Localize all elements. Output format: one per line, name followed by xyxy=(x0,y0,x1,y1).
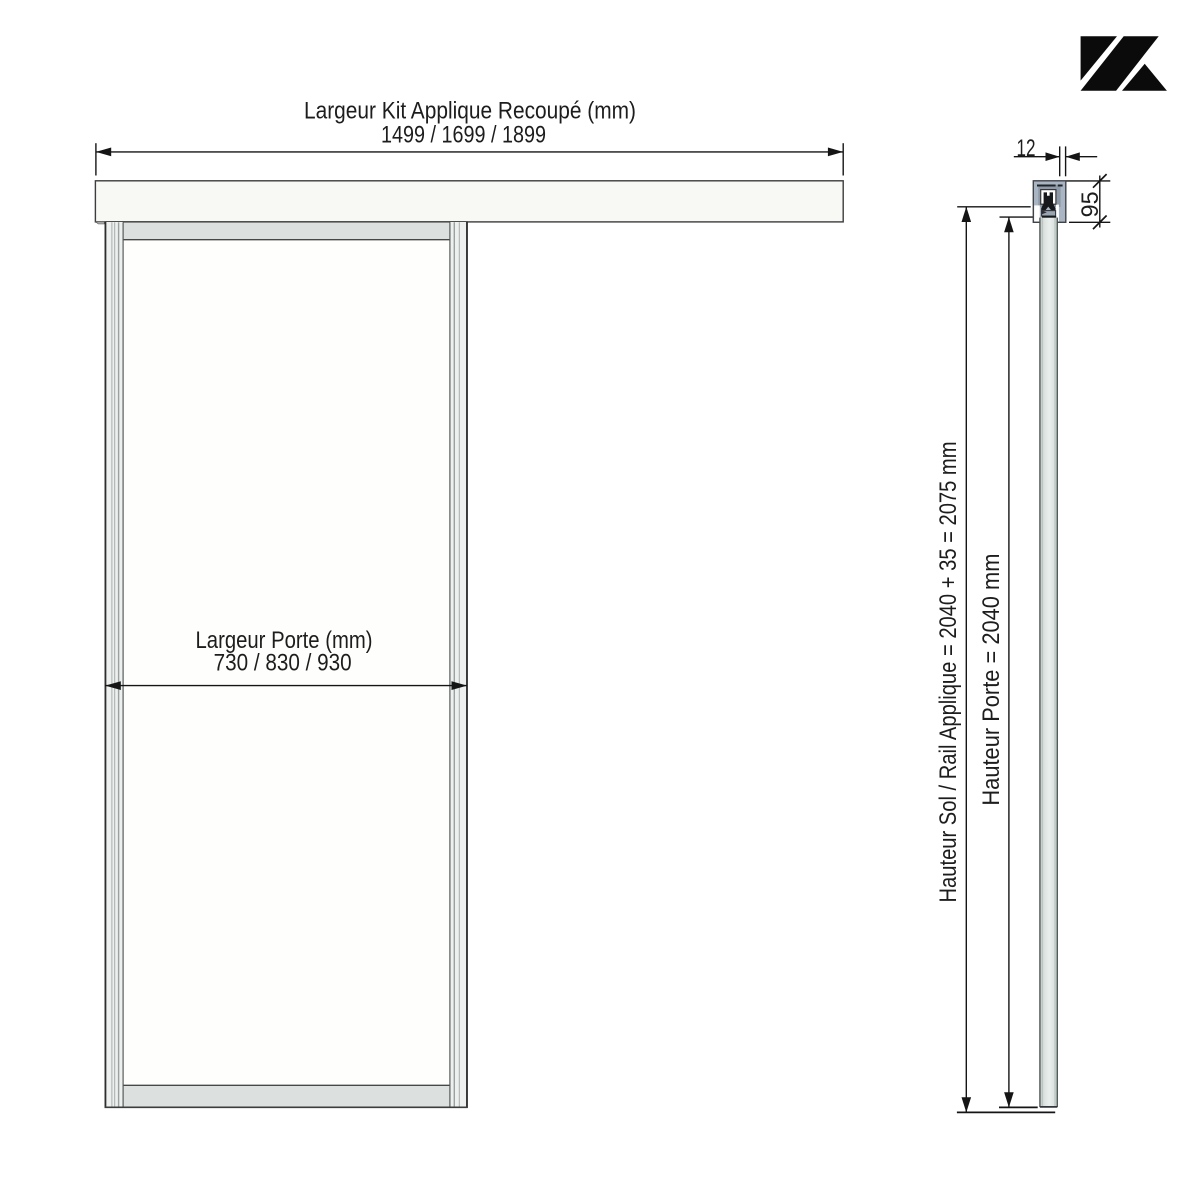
svg-text:95: 95 xyxy=(1077,191,1104,217)
svg-text:1499 / 1699 / 1899: 1499 / 1699 / 1899 xyxy=(381,122,546,149)
svg-text:Hauteur Porte = 2040 mm: Hauteur Porte = 2040 mm xyxy=(978,554,1005,806)
svg-text:12: 12 xyxy=(1017,135,1036,162)
svg-text:Largeur Kit Applique Recoupé (: Largeur Kit Applique Recoupé (mm) xyxy=(304,97,636,124)
svg-text:Hauteur Sol / Rail Applique =: Hauteur Sol / Rail Applique = 2040 + 35 … xyxy=(935,442,962,903)
svg-text:730 / 830 / 930: 730 / 830 / 930 xyxy=(214,650,352,677)
